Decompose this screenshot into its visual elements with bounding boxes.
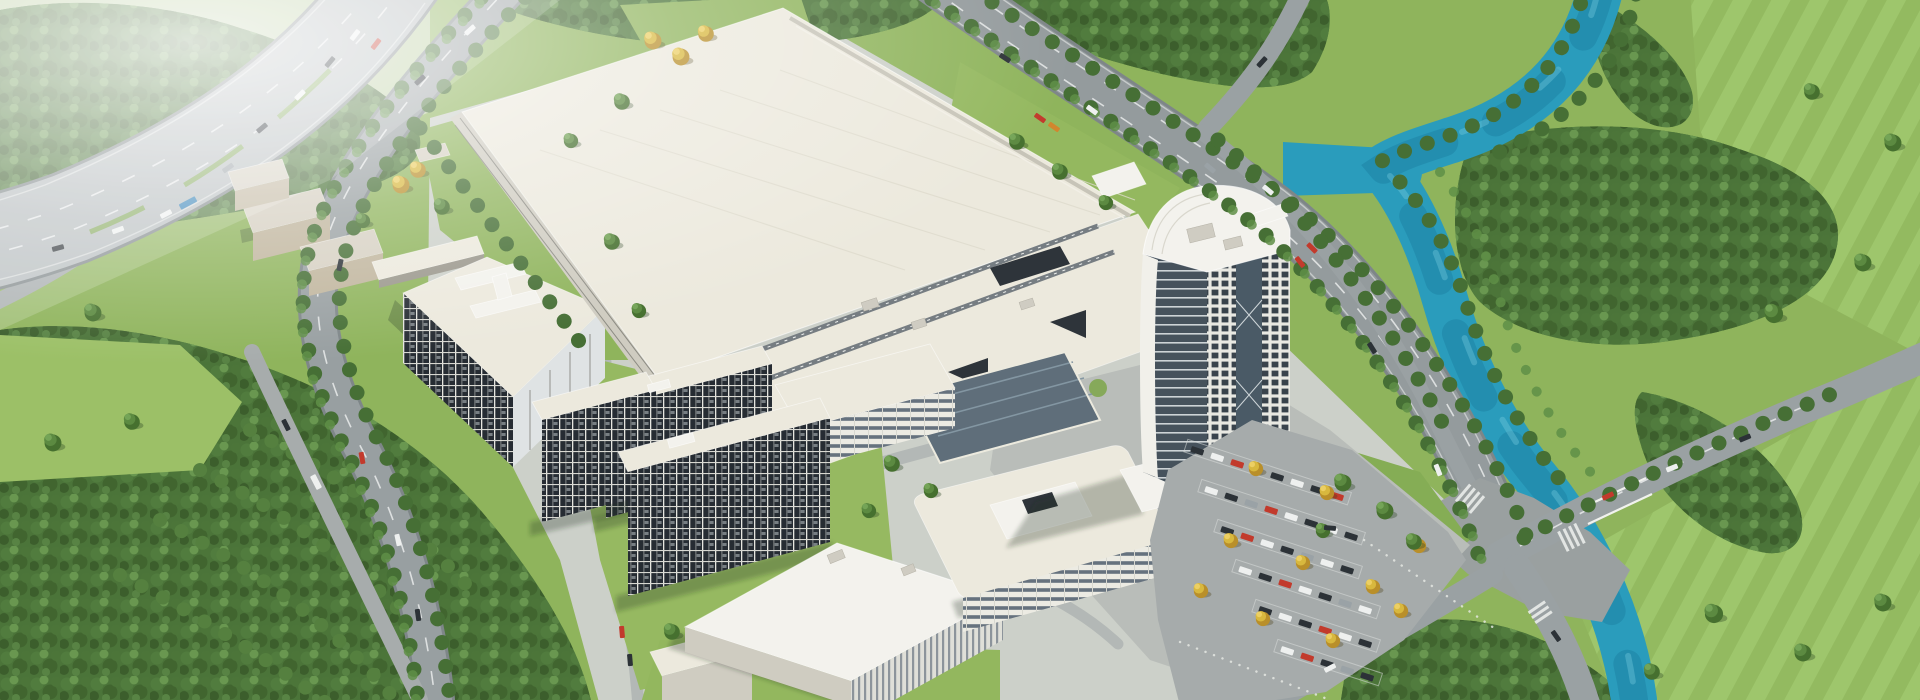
atmosphere [0,0,1920,700]
aerial-view-svg [0,0,1920,700]
aerial-campus-rendering [0,0,1920,700]
